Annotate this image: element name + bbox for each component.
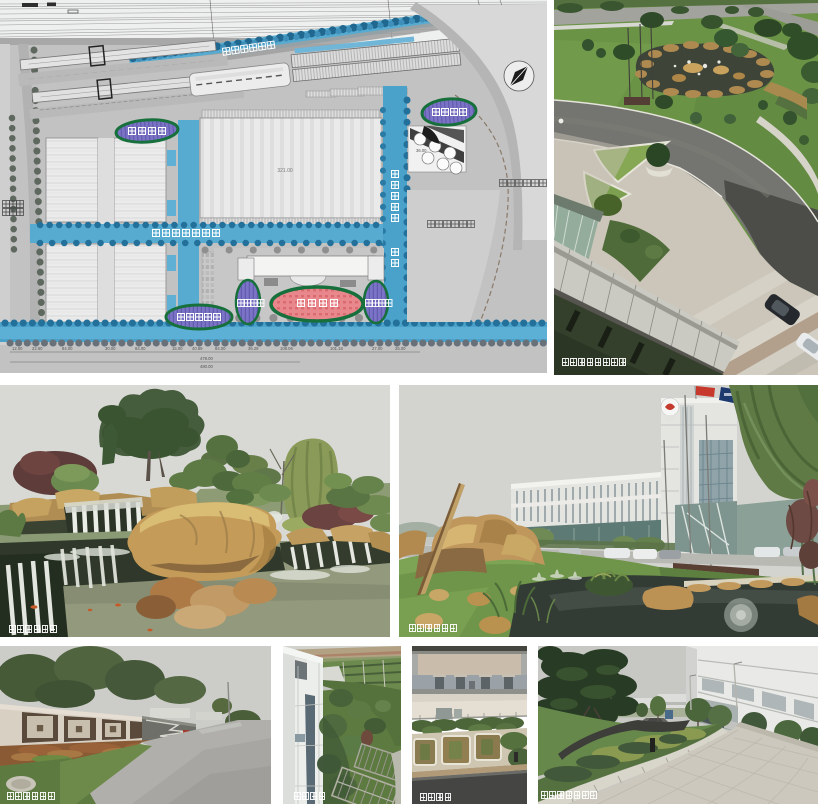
svg-text:■: ■ [109, 721, 117, 736]
svg-text:■: ■ [75, 721, 83, 736]
svg-text:84.00: 84.00 [135, 346, 146, 351]
svg-text:36.29: 36.29 [248, 346, 259, 351]
svg-text:108.06: 108.06 [280, 346, 293, 351]
svg-text:84.00: 84.00 [62, 346, 73, 351]
svg-text:12.00: 12.00 [12, 346, 23, 351]
svg-text:15.00: 15.00 [172, 346, 183, 351]
svg-text:40.89: 40.89 [192, 346, 203, 351]
svg-text:■: ■ [36, 720, 44, 735]
svg-text:478.00: 478.00 [200, 356, 213, 361]
svg-text:25.00: 25.00 [395, 346, 406, 351]
svg-text:36.00: 36.00 [416, 148, 427, 153]
svg-text:480.00: 480.00 [200, 364, 213, 369]
svg-text:27.00: 27.00 [372, 346, 383, 351]
svg-text:101.18: 101.18 [330, 346, 343, 351]
svg-text:30.00: 30.00 [105, 346, 116, 351]
svg-text:84.00: 84.00 [215, 346, 226, 351]
svg-text:22.60: 22.60 [32, 346, 43, 351]
svg-text:321.00: 321.00 [277, 168, 293, 174]
